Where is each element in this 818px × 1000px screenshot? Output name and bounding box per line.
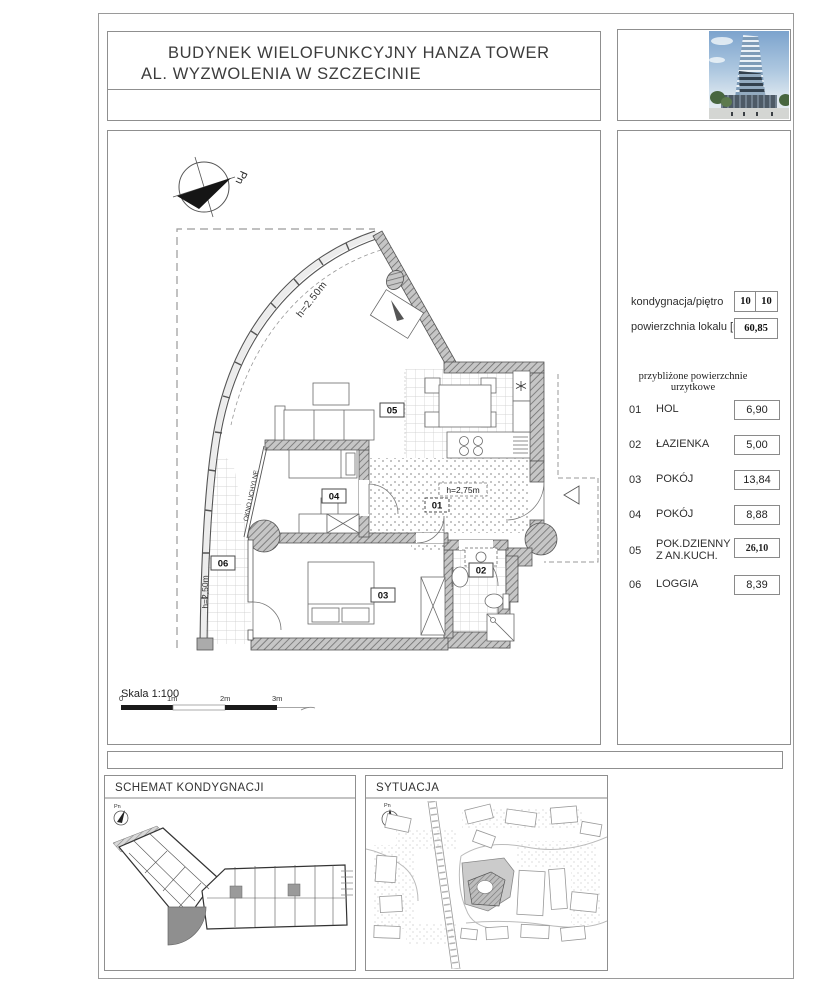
room-no: 02 [629, 439, 641, 451]
title-divider [108, 89, 600, 90]
room-name: ŁAZIENKA [656, 439, 732, 451]
person-graphic [731, 112, 733, 116]
room-name: POKÓJ [656, 509, 732, 521]
info-panel: kondygnacja/piętro 10 10 powierzchnia lo… [617, 130, 791, 745]
room-area: 8,88 [734, 505, 780, 525]
compass-label: Pn [233, 169, 250, 186]
room-no: 01 [629, 404, 641, 416]
floor-value-2: 10 [755, 291, 778, 312]
person-graphic [743, 112, 745, 116]
person-graphic [756, 112, 758, 116]
sytuacja-panel: SYTUACJA Pn [365, 775, 608, 971]
room-name: POKÓJ [656, 474, 732, 486]
room-no: 04 [629, 509, 641, 521]
title-block: BUDYNEK WIELOFUNKCYJNY HANZA TOWER AL. W… [107, 31, 601, 121]
hall-height-label: h=2,75m [446, 485, 479, 495]
window-note-label: OKNO UCHYLNE [243, 469, 261, 522]
mini-compass-label: Pn [114, 804, 121, 810]
areas-table-title: przybliżone powierzchnie urzytkowe [626, 371, 760, 393]
room-area: 8,39 [734, 575, 780, 595]
floor-value-1: 10 [734, 291, 757, 312]
building-address: AL. WYZWOLENIA W SZCZECINIE [141, 65, 600, 84]
north-compass: Pn [173, 157, 249, 217]
room-no: 03 [629, 474, 641, 486]
floor-label: kondygnacja/piętro [631, 296, 723, 308]
ground-graphic [709, 108, 789, 119]
room-label-03: 03 [378, 591, 389, 602]
scale-tick-1m: 1m [167, 694, 177, 703]
entrance-marker [564, 486, 579, 504]
person-graphic [771, 112, 773, 116]
room-no: 05 [629, 545, 641, 557]
empty-strip [107, 751, 783, 769]
room-label-06: 06 [218, 559, 229, 570]
scale-tick-0: 0 [119, 694, 123, 703]
mini-compass-label: Pn [384, 803, 391, 809]
highlighted-apartment [168, 907, 206, 945]
building-outline [119, 828, 347, 929]
core-shaft [288, 884, 300, 896]
sytuacja-title: SYTUACJA [366, 776, 607, 799]
area-label: powierzchnia lokalu [m²] [631, 321, 749, 333]
room-area: 5,00 [734, 435, 780, 455]
floor-schematic-drawing: Pn [105, 801, 355, 969]
site-map-drawing: Pn [366, 801, 607, 969]
scale-tick-2m: 2m [220, 694, 230, 703]
building-title: BUDYNEK WIELOFUNKCYJNY HANZA TOWER [168, 44, 600, 63]
building-photo-box [617, 29, 791, 121]
room-label-05: 05 [387, 406, 398, 417]
room-area: 13,84 [734, 470, 780, 490]
room-name: POK.DZIENNY Z AN.KUCH. [656, 539, 732, 562]
map-plot [462, 858, 514, 911]
room-no: 06 [629, 579, 641, 591]
mini-compass: Pn [114, 804, 128, 825]
room-area: 26,10 [734, 538, 780, 558]
schemat-panel: SCHEMAT KONDYGNACJI Pn [104, 775, 356, 971]
room-label-02: 02 [476, 566, 487, 577]
scale-bar: Skala 1:100 0 1m 2m 3m [119, 688, 315, 710]
room-label-01: 01 [432, 501, 443, 512]
room-name: HOL [656, 404, 732, 416]
room-area: 6,90 [734, 400, 780, 420]
schemat-title: SCHEMAT KONDYGNACJI [105, 776, 355, 799]
tree-graphic [779, 94, 789, 106]
core-shaft [230, 886, 242, 898]
room-name: LOGGIA [656, 579, 732, 591]
cloud-graphic [711, 37, 733, 45]
apartment-sheet: BUDYNEK WIELOFUNKCYJNY HANZA TOWER AL. W… [0, 0, 818, 1000]
floor-plan-panel: Pn [107, 130, 601, 745]
facade-height-label: h=2.50m [295, 279, 330, 319]
building-photo [709, 31, 789, 119]
scale-tick-3m: 3m [272, 694, 282, 703]
floor-plan-drawing: Pn [108, 131, 600, 744]
loggia-height-label: h=2,50m [200, 575, 210, 608]
room-label-04: 04 [329, 492, 340, 503]
area-value: 60,85 [734, 318, 778, 339]
cloud-graphic [709, 57, 725, 63]
tree-graphic [721, 97, 732, 107]
